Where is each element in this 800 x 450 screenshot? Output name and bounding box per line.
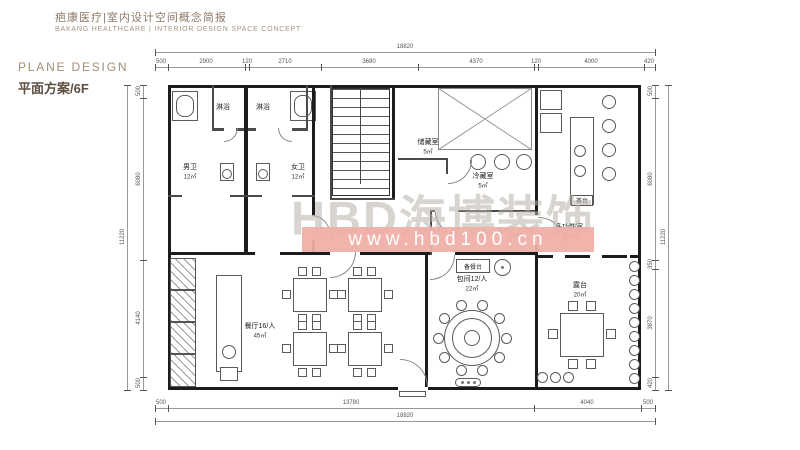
dim-label: 420 xyxy=(648,378,654,388)
plant-icon xyxy=(629,345,640,356)
dim-label-overall: 11220 xyxy=(661,229,667,245)
dimension-tick xyxy=(140,85,147,86)
dim-label: 6080 xyxy=(648,172,654,185)
dimension-tick xyxy=(538,64,539,71)
dimension-tick xyxy=(652,377,659,378)
dimension-line xyxy=(668,85,669,390)
counter-unit xyxy=(220,367,238,381)
room-label-shower-l: 淋浴 xyxy=(216,102,230,112)
plant-icon xyxy=(537,372,548,383)
partition-wall xyxy=(306,85,308,130)
dining-table xyxy=(348,332,382,366)
dimension-tick xyxy=(641,405,642,412)
lounge-chair xyxy=(602,143,616,157)
chair xyxy=(456,300,467,311)
wall xyxy=(280,252,315,255)
chair xyxy=(494,352,505,363)
round-stool xyxy=(470,154,486,170)
chair xyxy=(586,301,596,311)
dimension-tick xyxy=(140,98,147,99)
chair xyxy=(353,267,362,276)
chair xyxy=(606,329,616,339)
dimension-tick xyxy=(245,64,246,71)
shaft-cell xyxy=(170,322,196,354)
void-skylight xyxy=(438,88,532,150)
wall xyxy=(565,255,590,258)
chair xyxy=(337,290,346,299)
partition-wall xyxy=(168,195,182,197)
dimension-tick xyxy=(155,64,156,71)
plant-icon xyxy=(629,303,640,314)
cabinet xyxy=(540,90,562,110)
teacup xyxy=(574,145,586,157)
dimension-line xyxy=(143,85,144,390)
dimension-tick xyxy=(652,260,659,261)
dining-table xyxy=(293,278,327,312)
dim-label: 420 xyxy=(644,59,654,65)
teacup xyxy=(574,165,586,177)
room-label-private: 包间12/人 xyxy=(457,274,488,284)
partition-wall xyxy=(230,195,262,197)
wall xyxy=(168,252,255,255)
section-title-zh: 平面方案/6F xyxy=(18,78,89,97)
chair xyxy=(353,368,362,377)
partition-wall xyxy=(248,128,256,131)
dim-label-overall: 18820 xyxy=(397,413,414,419)
dimension-tick xyxy=(249,64,250,71)
terrace-table xyxy=(560,313,604,357)
dimension-tick xyxy=(644,64,645,71)
dimension-tick xyxy=(418,64,419,71)
chair xyxy=(568,301,578,311)
dimension-tick xyxy=(655,64,656,71)
plant-icon xyxy=(629,373,640,384)
wall xyxy=(535,258,538,390)
stair-rail xyxy=(360,88,361,184)
partition-wall xyxy=(292,128,308,131)
plant-icon xyxy=(629,359,640,370)
dim-label: 3680 xyxy=(362,59,375,65)
watermark-url: www.hbd100.cn xyxy=(348,229,547,251)
room-label-mens-wc: 男卫 xyxy=(183,162,197,172)
door-swing-arc xyxy=(224,128,238,142)
chair xyxy=(384,290,393,299)
dimension-tick xyxy=(534,64,535,71)
serving-counter-label: 备餐台 xyxy=(464,262,482,271)
partition-wall xyxy=(212,85,214,130)
chair xyxy=(282,344,291,353)
room-area-mens-wc: 12㎡ xyxy=(184,172,197,181)
chair xyxy=(586,359,596,369)
wall xyxy=(455,252,535,255)
dim-label: 2710 xyxy=(278,59,291,65)
watermark-band: www.hbd100.cn xyxy=(302,227,594,252)
lounge-chair xyxy=(602,95,616,109)
dimension-line xyxy=(155,408,655,409)
wall xyxy=(602,255,627,258)
plant-icon xyxy=(629,261,640,272)
partition-wall xyxy=(212,128,224,131)
chair xyxy=(501,333,512,344)
dimension-tick xyxy=(140,260,147,261)
dimension-tick xyxy=(124,390,131,391)
room-area-storage: 5㎡ xyxy=(423,147,432,156)
chair xyxy=(384,344,393,353)
dim-label: 120 xyxy=(242,59,252,65)
dim-label: 500 xyxy=(136,86,142,96)
room-label-womens-wc: 女卫 xyxy=(291,162,305,172)
shaft-cell xyxy=(170,354,196,387)
dimension-tick xyxy=(534,405,535,412)
dim-label: 500 xyxy=(156,400,166,406)
chair xyxy=(298,321,307,330)
dimension-tick xyxy=(652,390,659,391)
dim-label-overall: 18820 xyxy=(397,44,414,50)
room-label-shower-r: 淋浴 xyxy=(256,102,270,112)
wall xyxy=(630,255,641,258)
dimension-line xyxy=(155,421,655,422)
dimension-tick xyxy=(140,377,147,378)
chair xyxy=(298,368,307,377)
room-area-private: 22㎡ xyxy=(466,284,479,293)
chair xyxy=(568,359,578,369)
dining-table xyxy=(348,278,382,312)
door-swing-arc xyxy=(430,255,455,280)
dimension-tick xyxy=(155,405,156,412)
lounge-chair xyxy=(602,119,616,133)
dim-label: 500 xyxy=(156,59,166,65)
chair xyxy=(282,290,291,299)
dimension-line xyxy=(127,85,128,390)
dim-label: 4040 xyxy=(580,400,593,406)
round-stool xyxy=(516,154,532,170)
wall xyxy=(168,85,641,88)
dim-label: 4370 xyxy=(469,59,482,65)
dim-label: 2900 xyxy=(199,59,212,65)
toilet-bowl xyxy=(258,169,268,179)
chair xyxy=(439,352,450,363)
chair xyxy=(367,321,376,330)
dimension-line xyxy=(155,67,655,68)
plant-icon xyxy=(629,317,640,328)
wall xyxy=(244,85,248,255)
dim-label-overall: 11220 xyxy=(120,229,126,245)
dim-label: 4000 xyxy=(584,59,597,65)
dimension-tick xyxy=(665,85,672,86)
dimension-tick xyxy=(140,390,147,391)
plant-icon xyxy=(563,372,574,383)
chair xyxy=(494,313,505,324)
plant-icon xyxy=(629,275,640,286)
chair xyxy=(353,321,362,330)
dim-label: 120 xyxy=(531,59,541,65)
chair xyxy=(433,333,444,344)
door-swing-arc xyxy=(278,128,292,142)
plant-icon xyxy=(629,289,640,300)
shaft-cell xyxy=(170,290,196,322)
chair xyxy=(477,365,488,376)
toilet-bowl xyxy=(222,169,232,179)
chair xyxy=(337,344,346,353)
room-label-dining: 餐厅16/人 xyxy=(245,321,276,331)
partition-wall xyxy=(398,158,448,160)
chair xyxy=(456,365,467,376)
door-swing-arc xyxy=(400,359,428,387)
room-area-terrace: 20㎡ xyxy=(574,290,587,299)
lounge-chair xyxy=(602,167,616,181)
chair xyxy=(367,368,376,377)
room-area-dining: 45㎡ xyxy=(254,331,267,340)
dimension-tick xyxy=(652,98,659,99)
dimension-tick xyxy=(652,85,659,86)
bathtub-inner xyxy=(294,95,312,117)
dimension-tick xyxy=(655,418,656,425)
dim-label: 500 xyxy=(648,86,654,96)
chair xyxy=(477,300,488,311)
room-label-terrace: 露台 xyxy=(573,280,587,290)
dim-label: 6080 xyxy=(136,172,142,185)
dimension-tick xyxy=(168,64,169,71)
dimension-tick xyxy=(124,85,131,86)
round-stool xyxy=(494,154,510,170)
dimension-line xyxy=(655,85,656,390)
chair xyxy=(312,321,321,330)
dim-label: 3870 xyxy=(648,316,654,329)
dim-label: 13780 xyxy=(343,400,360,406)
lazy-susan xyxy=(464,330,480,346)
bathtub-inner xyxy=(176,95,194,117)
wall xyxy=(315,252,330,255)
room-label-storage: 储藏室 xyxy=(418,137,439,147)
chair xyxy=(312,267,321,276)
chair xyxy=(298,267,307,276)
dimension-tick xyxy=(321,64,322,71)
plant-icon xyxy=(550,372,561,383)
shaft-cell xyxy=(170,258,196,290)
chair xyxy=(439,313,450,324)
dim-label: 4140 xyxy=(136,311,142,324)
dimension-tick xyxy=(168,405,169,412)
entry-step xyxy=(399,391,426,397)
cabinet xyxy=(540,113,562,133)
door-opening xyxy=(398,387,428,390)
dimension-tick xyxy=(155,418,156,425)
slide: 疤康医疗|室内设计空间概念简报 BAKANG HEALTHCARE | INTE… xyxy=(0,0,800,450)
serving-counter-box: 备餐台 xyxy=(456,259,490,273)
company-title-en: BAKANG HEALTHCARE | INTERIOR DESIGN SPAC… xyxy=(55,26,301,33)
dimension-line xyxy=(155,52,655,53)
wall xyxy=(360,252,425,255)
dimension-tick xyxy=(665,390,672,391)
dining-table xyxy=(293,332,327,366)
chair xyxy=(548,329,558,339)
dimension-tick xyxy=(652,269,659,270)
wall xyxy=(638,85,641,390)
wall xyxy=(425,255,428,387)
dimension-tick xyxy=(155,49,156,56)
dimension-tick xyxy=(655,405,656,412)
dim-label: 500 xyxy=(136,378,142,388)
chair xyxy=(312,368,321,377)
chair xyxy=(367,267,376,276)
dimension-tick xyxy=(655,49,656,56)
plant-icon xyxy=(629,331,640,342)
sink-icon xyxy=(222,345,236,359)
company-title-zh: 疤康医疗|室内设计空间概念简报 xyxy=(55,9,227,25)
dim-label: 500 xyxy=(643,400,653,406)
